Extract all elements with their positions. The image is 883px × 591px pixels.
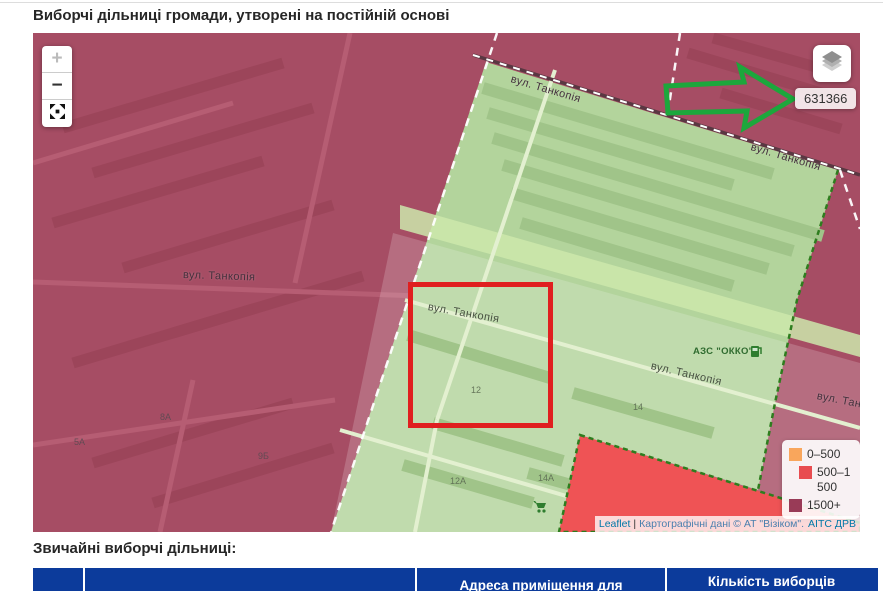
legend-swatch-high <box>789 499 802 512</box>
fullscreen-icon <box>50 103 65 125</box>
legend-swatch-mid <box>799 466 812 479</box>
leaflet-map[interactable]: вул. Танкопія вул. Танкопія вул. Танкопі… <box>33 33 860 532</box>
page-title: Виборчі дільниці громади, утворені на по… <box>33 7 449 24</box>
top-divider <box>0 2 883 3</box>
fuel-pump-icon <box>750 343 763 363</box>
gas-station-label: АЗС "ОККО" <box>693 346 753 357</box>
legend-label: 500–1500 <box>817 465 854 494</box>
annotation-arrow-icon <box>657 59 807 144</box>
building-number: 8А <box>160 412 171 422</box>
building-number: 5А <box>74 437 85 447</box>
building-number: 14 <box>633 402 643 412</box>
leaflet-link[interactable]: Leaflet <box>599 518 631 530</box>
table-header-station <box>85 568 417 591</box>
map-legend: 0–500 500–1500 1500+ <box>782 440 860 519</box>
map-attribution: Leaflet|Картографічні дані © АТ "Візіком… <box>595 516 860 532</box>
polling-stations-table-header: Адреса приміщення для голосування Кількі… <box>33 568 878 591</box>
fullscreen-button[interactable] <box>42 100 72 127</box>
legend-label: 0–500 <box>807 447 840 461</box>
building-number: 12А <box>450 476 466 486</box>
building-number: 14А <box>538 473 554 483</box>
layers-icon <box>819 48 845 79</box>
table-header-address: Адреса приміщення для голосування <box>417 568 667 591</box>
table-header-voters: Кількість виборців <box>667 568 876 591</box>
street-label-tankopiya: вул. Танкопія <box>183 269 256 284</box>
annotation-rectangle <box>408 282 553 428</box>
legend-swatch-low <box>789 448 802 461</box>
attribution-separator: | <box>633 518 636 530</box>
zoom-out-button[interactable]: − <box>42 73 72 100</box>
legend-item: 0–500 <box>789 447 854 461</box>
building-number: 9Б <box>258 451 269 461</box>
station-number-badge[interactable]: 631366 <box>795 88 856 109</box>
legend-item: 1500+ <box>789 498 854 512</box>
table-header-index <box>33 568 85 591</box>
page: { "header": { "title": "Виборчі дільниці… <box>0 0 883 591</box>
legend-item: 500–1500 <box>799 465 854 494</box>
zoom-control: + − <box>42 46 72 127</box>
layers-control[interactable] <box>813 45 851 82</box>
shopping-cart-icon <box>533 501 548 519</box>
zoom-in-button[interactable]: + <box>42 46 72 73</box>
section-title: Звичайні виборчі дільниці: <box>33 540 236 557</box>
legend-label: 1500+ <box>807 498 841 512</box>
registry-link[interactable]: АІТС ДРВ <box>808 518 856 530</box>
map-data-source-link[interactable]: Картографічні дані © АТ "Візіком". <box>639 518 804 530</box>
